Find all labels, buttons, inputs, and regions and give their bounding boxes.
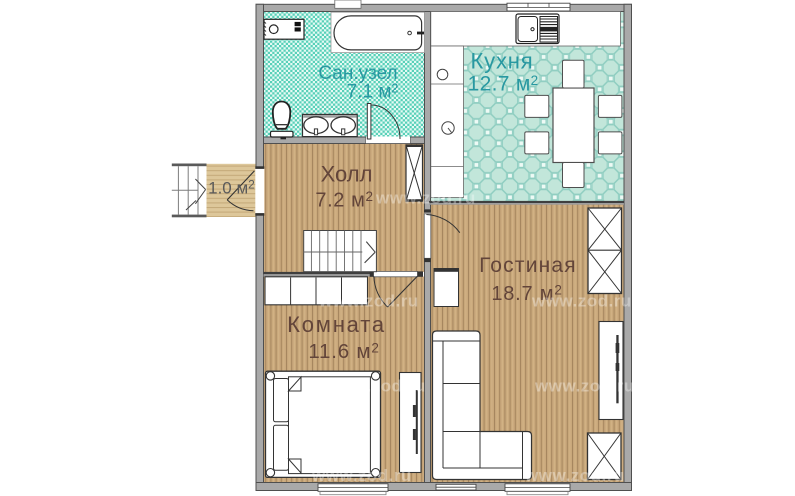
svg-text:www.zod.ru: www.zod.ru — [311, 466, 412, 485]
svg-text:www.zod.ru: www.zod.ru — [318, 292, 419, 311]
svg-text:11.6 м2: 11.6 м2 — [308, 340, 379, 363]
svg-text:12.7 м2: 12.7 м2 — [468, 73, 539, 96]
svg-text:www.zod.ru: www.zod.ru — [531, 292, 632, 311]
svg-text:Комната: Комната — [287, 312, 386, 337]
svg-text:7.1 м2: 7.1 м2 — [347, 82, 399, 103]
svg-text:www.zod.ru: www.zod.ru — [534, 377, 635, 396]
svg-text:Гостиная: Гостиная — [479, 254, 577, 277]
svg-text:www.zod.ru: www.zod.ru — [325, 377, 426, 396]
svg-text:7.2 м2: 7.2 м2 — [315, 189, 373, 212]
svg-text:Холл: Холл — [321, 162, 373, 187]
svg-text:www.zod.ru: www.zod.ru — [524, 466, 625, 485]
svg-text:Кухня: Кухня — [471, 49, 534, 74]
svg-text:1.0 м2: 1.0 м2 — [208, 178, 255, 198]
svg-text:www.zod.ru: www.zod.ru — [375, 189, 476, 208]
